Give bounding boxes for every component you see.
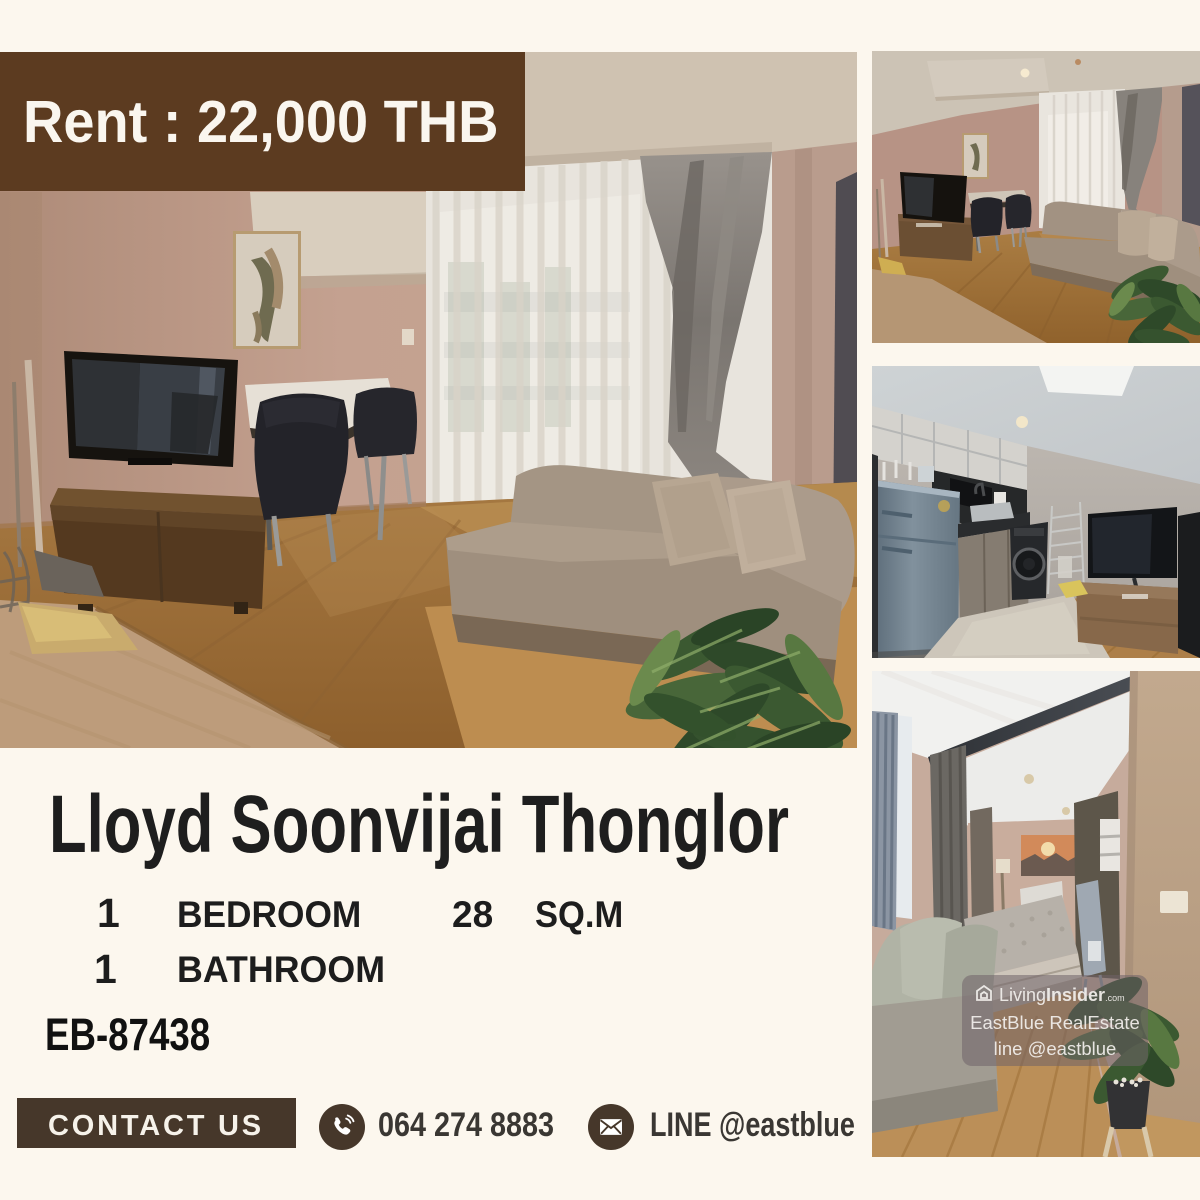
svg-text:EastBlue RealEstate: EastBlue RealEstate: [970, 1012, 1140, 1033]
svg-text:line @eastblue: line @eastblue: [994, 1038, 1117, 1059]
